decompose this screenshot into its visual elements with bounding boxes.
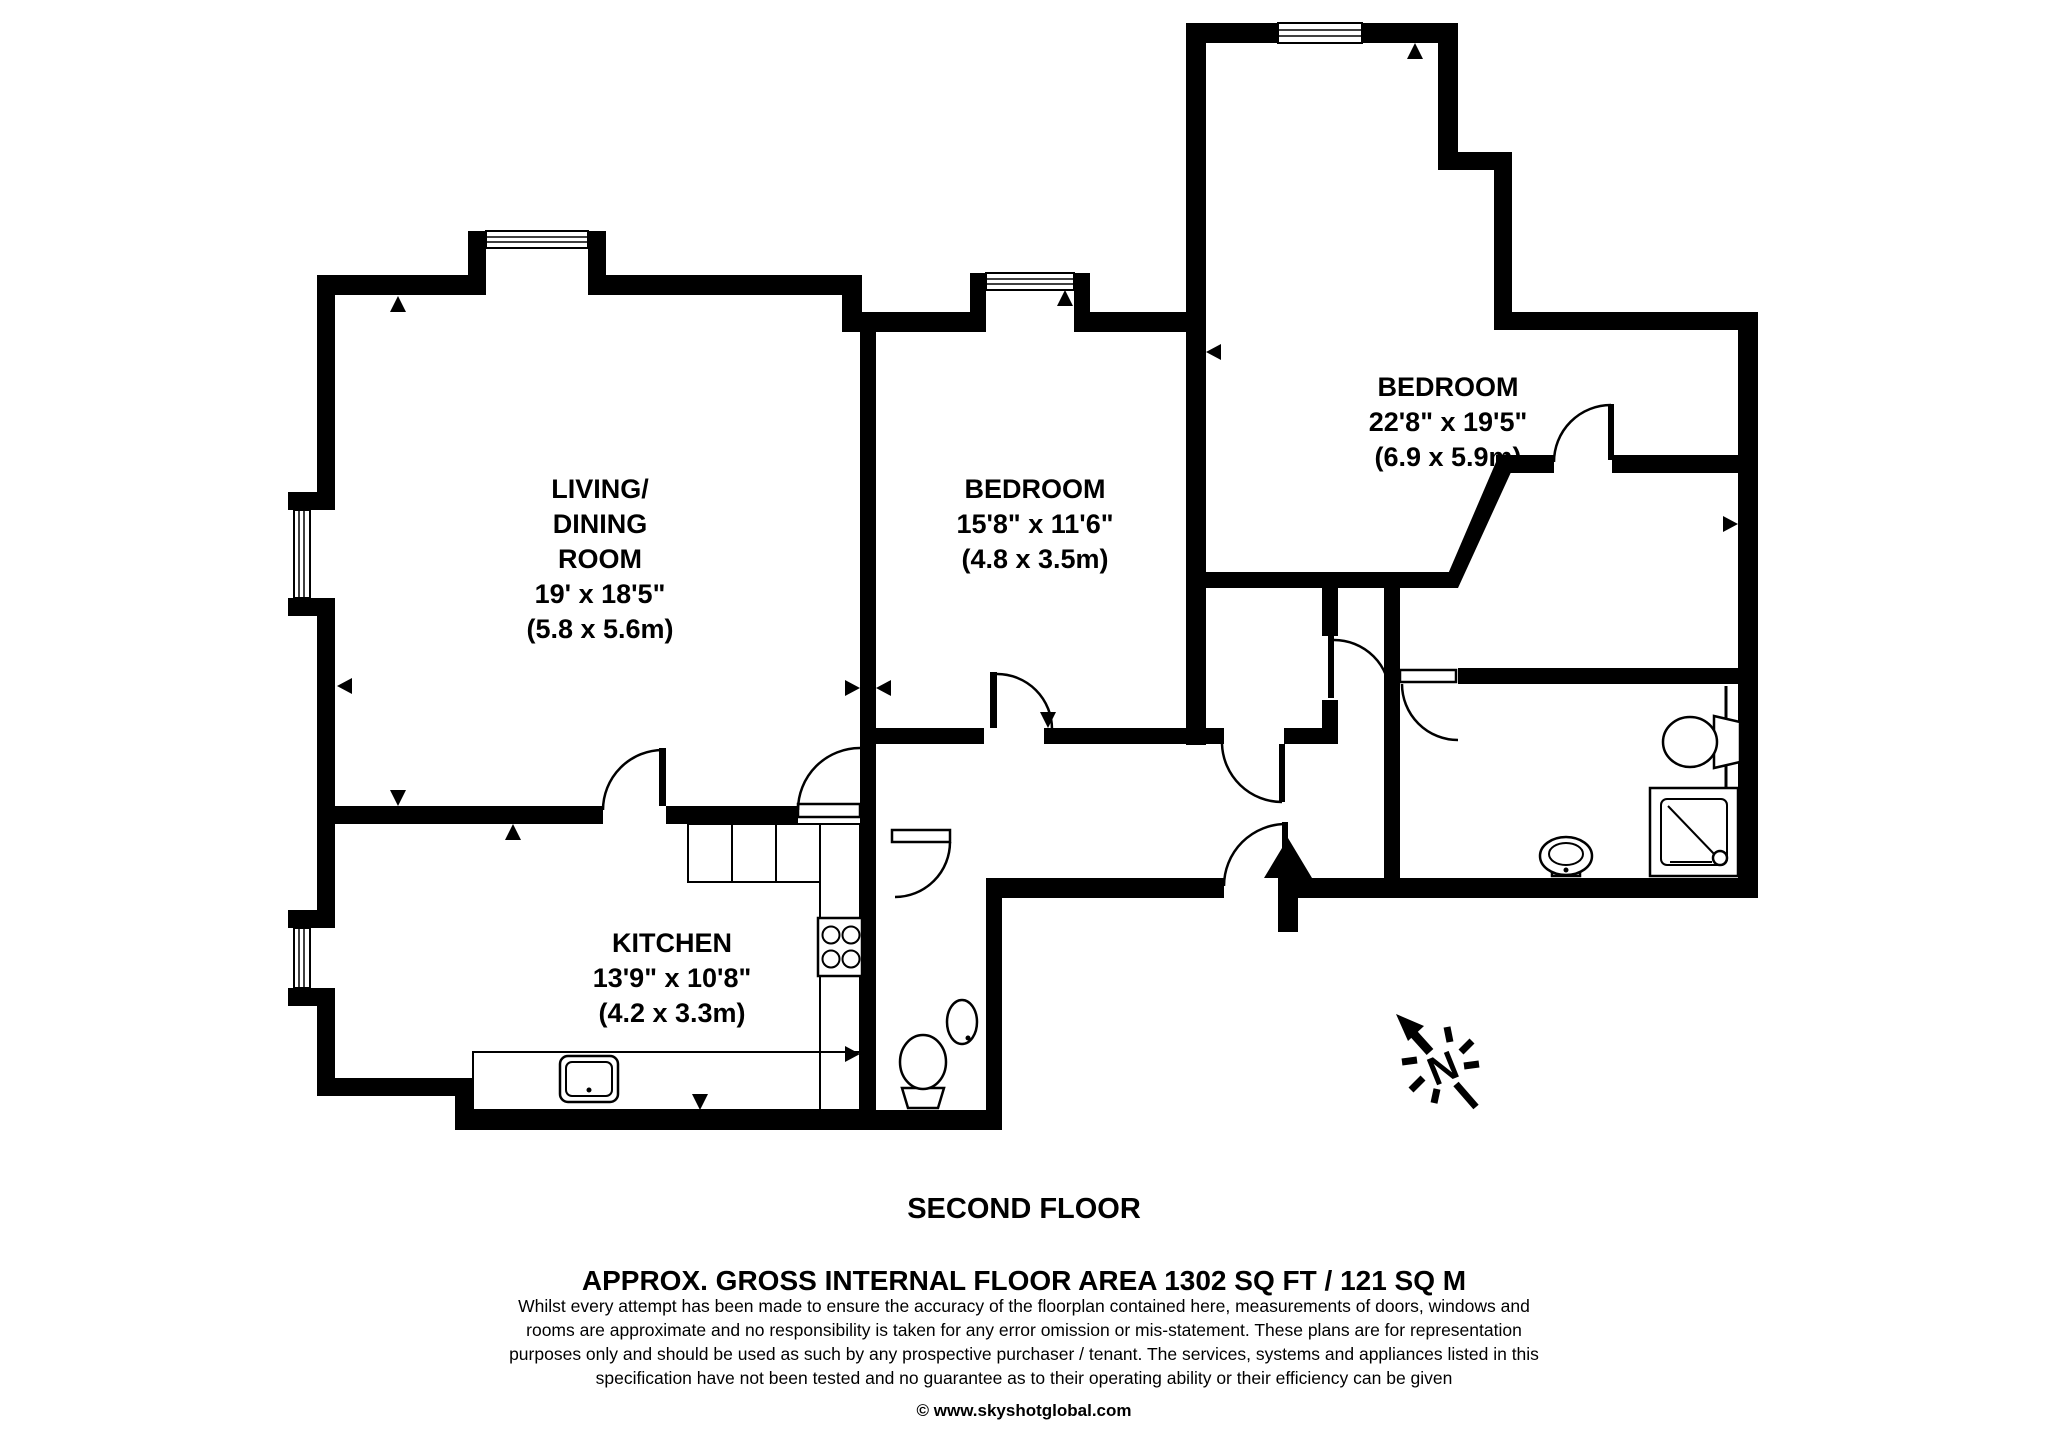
- shower-icon: [1650, 788, 1738, 876]
- area-title: APPROX. GROSS INTERNAL FLOOR AREA 1302 S…: [582, 1265, 1466, 1296]
- door-bathroom: [1400, 670, 1458, 740]
- wall-markers: [337, 43, 1738, 1110]
- door-bedroom1: [990, 672, 1052, 729]
- window-living-left: [294, 510, 310, 598]
- floor-title: SECOND FLOOR: [907, 1193, 1141, 1225]
- svg-text:22'8" x 19'5": 22'8" x 19'5": [1369, 407, 1528, 437]
- svg-text:(6.9 x 5.9m): (6.9 x 5.9m): [1374, 442, 1521, 472]
- door-kitchen: [603, 748, 666, 810]
- disclaimer-text: Whilst every attempt has been made to en…: [509, 1296, 1539, 1388]
- svg-text:KITCHEN: KITCHEN: [612, 928, 732, 958]
- wc-basin-icon: [947, 1000, 977, 1044]
- walls: [288, 23, 1758, 1130]
- svg-text:13'9" x 10'8": 13'9" x 10'8": [593, 963, 752, 993]
- door-store-side: [1328, 636, 1390, 698]
- floorplan-canvas: N LIVING/ DINING ROOM 19' x 18'5" (5.8 x…: [0, 0, 2048, 1453]
- kitchen-sink-icon: [560, 1056, 618, 1102]
- sink-icon: [1540, 837, 1592, 876]
- window-bedroom1: [986, 273, 1074, 290]
- svg-text:BEDROOM: BEDROOM: [965, 474, 1106, 504]
- svg-text:rooms are approximate and no r: rooms are approximate and no responsibil…: [526, 1320, 1522, 1340]
- door-store-bottom: [1222, 744, 1285, 802]
- svg-text:(4.8 x 3.5m): (4.8 x 3.5m): [961, 544, 1108, 574]
- door-bedroom2: [1554, 404, 1614, 462]
- window-living-bay: [486, 231, 588, 248]
- svg-text:(4.2 x 3.3m): (4.2 x 3.3m): [598, 998, 745, 1028]
- svg-text:purposes only and should be u: purposes only and should be used as such…: [509, 1344, 1539, 1364]
- svg-text:BEDROOM: BEDROOM: [1378, 372, 1519, 402]
- room-label-kitchen: KITCHEN 13'9" x 10'8" (4.2 x 3.3m): [593, 928, 752, 1028]
- svg-text:specification have not been te: specification have not been tested and n…: [596, 1368, 1453, 1388]
- door-wc: [892, 830, 950, 897]
- room-label-bedroom1: BEDROOM 15'8" x 11'6" (4.8 x 3.5m): [956, 474, 1113, 574]
- svg-text:(5.8 x 5.6m): (5.8 x 5.6m): [526, 614, 673, 644]
- window-bedroom2: [1278, 23, 1362, 43]
- svg-text:LIVING/: LIVING/: [551, 474, 649, 504]
- room-label-living: LIVING/ DINING ROOM 19' x 18'5" (5.8 x 5…: [526, 474, 673, 644]
- svg-text:19' x 18'5": 19' x 18'5": [535, 579, 666, 609]
- svg-text:15'8" x 11'6": 15'8" x 11'6": [956, 509, 1113, 539]
- room-label-bedroom2: BEDROOM 22'8" x 19'5" (6.9 x 5.9m): [1369, 372, 1528, 472]
- north-arrow-icon: N: [1396, 1014, 1479, 1107]
- svg-text:ROOM: ROOM: [558, 544, 642, 574]
- copyright-text: © www.skyshotglobal.com: [917, 1401, 1132, 1420]
- toilet-icon: [1663, 716, 1740, 768]
- window-kitchen-left: [294, 928, 310, 988]
- hob-icon: [818, 918, 862, 976]
- wc-toilet-icon: [900, 1035, 946, 1108]
- svg-text:Whilst every attempt has been: Whilst every attempt has been made to en…: [518, 1296, 1530, 1316]
- door-hall-living: [798, 748, 860, 817]
- svg-text:DINING: DINING: [553, 509, 648, 539]
